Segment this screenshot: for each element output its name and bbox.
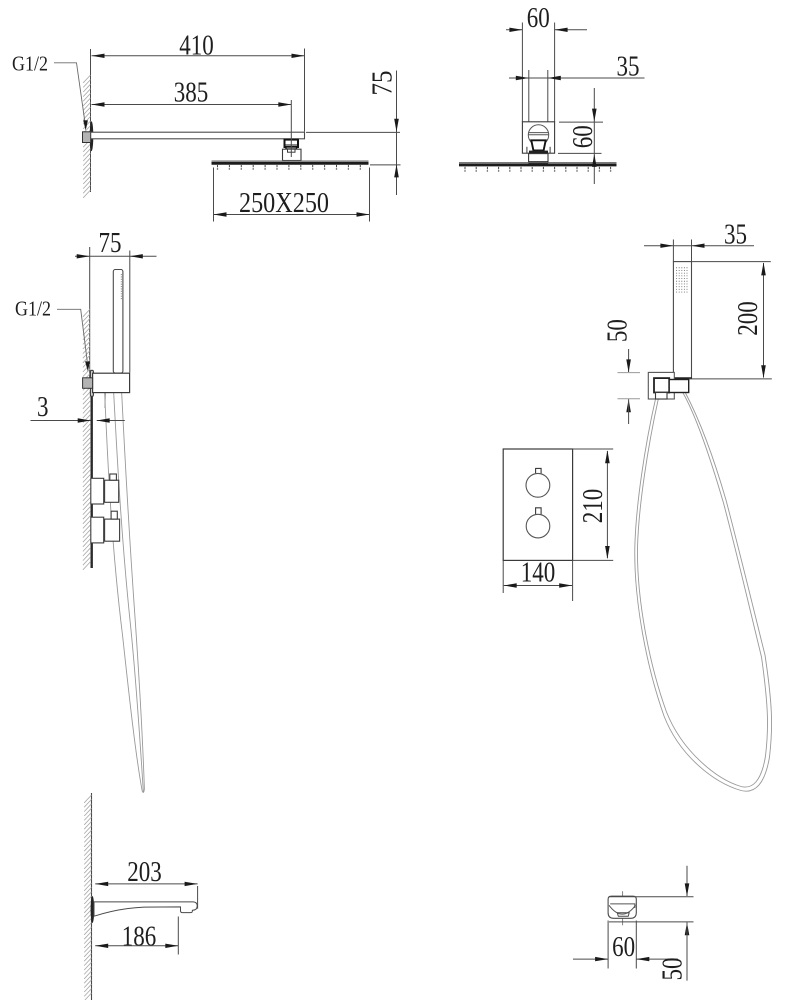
svg-text:385: 385 — [174, 78, 209, 109]
svg-text:50: 50 — [658, 958, 689, 981]
svg-text:210: 210 — [578, 489, 609, 524]
svg-text:410: 410 — [179, 30, 214, 61]
svg-text:60: 60 — [527, 3, 550, 34]
svg-text:75: 75 — [368, 71, 399, 96]
svg-text:60: 60 — [612, 932, 635, 963]
svg-text:75: 75 — [99, 228, 122, 259]
svg-text:140: 140 — [521, 558, 556, 589]
svg-text:203: 203 — [127, 857, 162, 888]
svg-text:200: 200 — [733, 301, 764, 336]
svg-text:50: 50 — [603, 319, 634, 342]
svg-text:186: 186 — [122, 921, 157, 952]
svg-text:G1/2: G1/2 — [12, 52, 48, 76]
svg-text:3: 3 — [37, 392, 49, 423]
svg-text:G1/2: G1/2 — [15, 297, 51, 321]
